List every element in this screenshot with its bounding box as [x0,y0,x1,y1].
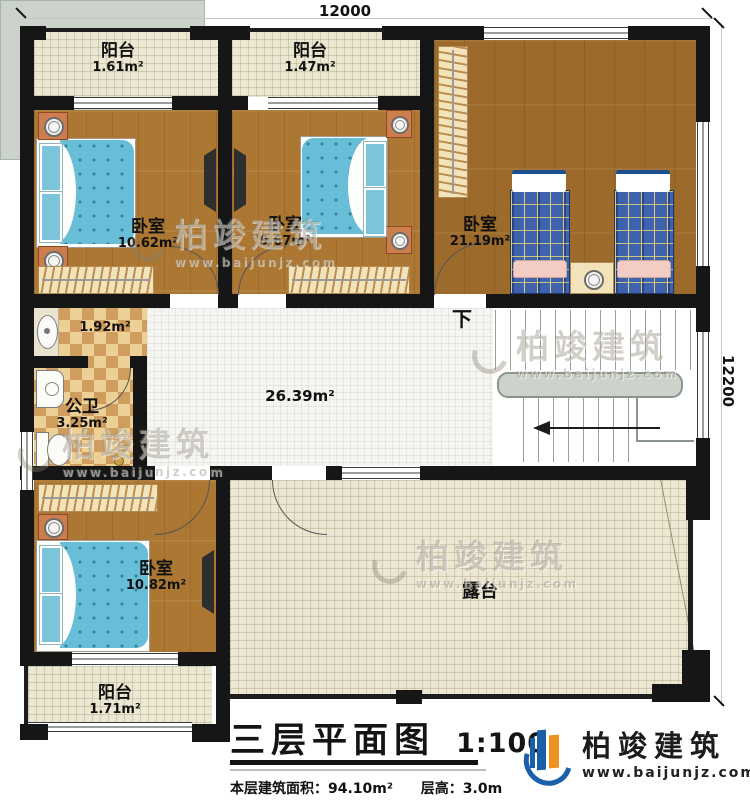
wall [20,652,72,666]
lamp-icon [44,518,64,538]
washer-drum-icon [45,382,59,396]
wall [326,466,342,480]
washbasin [37,315,58,349]
stair-landing-edge [636,440,694,442]
nightstand [386,226,412,254]
wall [20,466,155,480]
wall-post [682,650,710,686]
toilet-bowl [47,434,71,466]
window [21,432,33,490]
title-underline-thin [230,769,486,771]
logo-bar-icon [537,730,546,771]
floor-plan-sheet: 12000 12200 下 [0,0,750,803]
wall-post [20,724,48,740]
nightstand [38,514,68,540]
drain-icon [44,328,50,334]
brand-logo-icon [524,728,572,784]
brand-website: www.baijunjz.com [582,765,750,781]
lamp-icon [584,270,604,290]
window [342,467,420,479]
room-label-bedroom1: 卧室 10.62m² [88,218,208,252]
wall [34,96,74,110]
blanket [513,260,567,278]
dimension-right-value: 12200 [719,341,737,421]
wardrobe [38,266,154,294]
wall [130,356,147,368]
nightstand [38,112,68,140]
window [697,122,709,266]
wall [696,26,710,122]
lamp-icon [391,116,409,134]
wall [20,26,34,432]
window [72,653,178,665]
room-label-balcony-tm: 阳台 1.47m² [250,42,370,76]
wall [34,356,88,368]
logo-bar-icon [549,735,559,769]
pillow [40,546,62,594]
page-title: 三层平面图 [230,712,435,763]
wardrobe [38,484,158,512]
dimension-tick [713,695,724,706]
wall-post [652,684,710,702]
wall [20,294,170,308]
wall [178,652,216,666]
wall-post [396,690,422,704]
wall [133,368,147,466]
floor-height-label: 层高： [421,781,463,797]
pillow [616,170,670,192]
stair-railing [497,372,683,398]
pillow [40,192,62,242]
stair-direction-arrow [533,421,550,435]
wall-post [686,480,710,520]
dimension-tick [701,7,712,18]
room-label-bathroom: 公卫 3.25m² [42,398,122,432]
room-label-vestibule: 1.92m² [65,321,145,336]
wall [420,26,434,308]
pillow [364,188,386,236]
brand-company: 柏竣建筑 [582,729,726,763]
blanket [617,260,671,278]
wall [172,96,248,110]
pillow [40,144,62,192]
brand-logo: 柏竣建筑 www.baijunjz.com [524,728,750,784]
stairs-down-label: 下 [446,308,478,330]
dimension-tick [713,17,724,28]
area-value: 94.10m² [328,781,393,797]
window [268,97,378,109]
terrace-rail [230,694,654,699]
terrace-rail [688,520,693,650]
wall [216,480,230,726]
wall-post [192,724,230,742]
room-label-balcony-bl: 阳台 1.71m² [55,684,175,718]
wall [486,294,710,308]
balcony-window-rail [28,722,192,732]
wall [420,466,710,480]
stair-path-line [550,427,660,429]
wall [218,26,232,308]
logo-swoosh-icon [515,728,581,795]
lamp-icon [391,232,409,250]
stair-treads-upper [495,310,694,370]
window [74,97,172,109]
balcony-rail [24,666,28,726]
stair-landing-edge [636,398,638,442]
wall [378,96,434,110]
wall [286,294,434,308]
dimension-top-value: 12000 [285,2,405,20]
pillow [512,170,566,192]
window [484,27,628,39]
pillow [40,594,62,644]
balcony-rail [46,28,192,32]
nightstand [386,110,412,138]
title-block: 三层平面图 1:100 [230,712,547,763]
lamp-icon [44,117,64,137]
wall [210,466,272,480]
floor-height-value: 3.0m [463,781,502,797]
wardrobe [438,46,468,198]
twin-bed [614,190,674,294]
nightstand [570,262,614,294]
room-label-bedroom2: 卧室 9.67m² [225,216,345,250]
room-label-hall: 26.39m² [230,388,370,405]
logo-bar-icon [530,738,535,768]
room-label-bedroom4: 卧室 10.82m² [96,560,216,594]
tv-icon [234,148,246,212]
window [697,332,709,438]
area-label: 本层建筑面积： [230,781,328,797]
room-label-balcony-tl: 阳台 1.61m² [58,42,178,76]
room-label-terrace: 露台 [420,582,540,602]
floor-info: 本层建筑面积：94.10m² 层高：3.0m [230,778,502,798]
balcony-rail [248,28,384,32]
pillow [364,142,386,188]
tv-icon [204,148,216,212]
wardrobe [288,266,410,294]
wall [20,490,34,666]
wall [218,294,238,308]
room-label-bedroom3: 卧室 21.19m² [420,216,540,250]
door-knob-icon [114,456,124,466]
